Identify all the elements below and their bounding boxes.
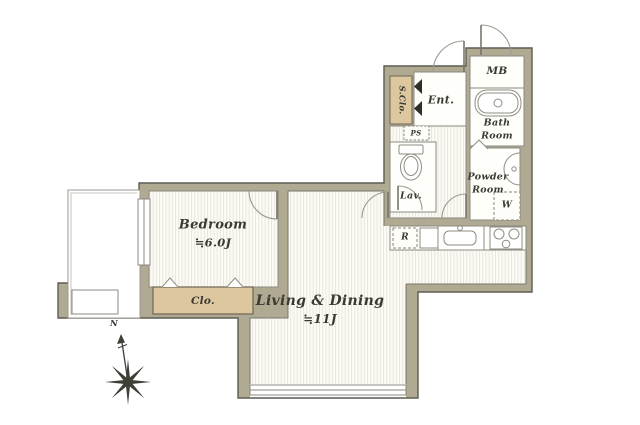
living-floor (288, 191, 384, 384)
kitchen-sink-icon (438, 226, 484, 250)
powder-label-line2: Room (472, 185, 504, 195)
powder-label-line1: Powder (468, 172, 509, 182)
floorplan: Bedroom ≒6.0J Living & Dining ≒11J Clo. … (0, 0, 640, 425)
washer-label: W (502, 202, 512, 211)
living-dining-size: ≒11J (303, 313, 337, 325)
pipe-space-label: PS (411, 130, 422, 137)
compass-icon (105, 334, 151, 405)
living-window (250, 385, 406, 395)
living-dining-label: Living & Dining (256, 294, 384, 308)
balcony-hatch (72, 290, 118, 314)
bathtub-icon (475, 90, 521, 116)
closet-label: Clo. (191, 296, 215, 307)
refrigerator-label: R (401, 234, 409, 243)
compass-north-label: N (110, 320, 118, 329)
shoe-closet-label: S.Clo. (397, 85, 406, 114)
bedroom-size: ≒6.0J (195, 237, 232, 249)
bedroom-window (138, 199, 150, 265)
toilet-icon (399, 145, 423, 180)
lavatory-label: Lav. (400, 191, 422, 201)
bath-label-line1: Bath (484, 118, 511, 128)
floorplan-drawing (0, 0, 640, 425)
kitchen-cabinet (420, 228, 438, 248)
stove-icon (490, 227, 522, 249)
bedroom-label: Bedroom (179, 219, 247, 232)
entrance-label: Ent. (428, 95, 455, 106)
bath-label-line2: Room (481, 131, 513, 141)
meter-box-label: MB (486, 66, 507, 77)
